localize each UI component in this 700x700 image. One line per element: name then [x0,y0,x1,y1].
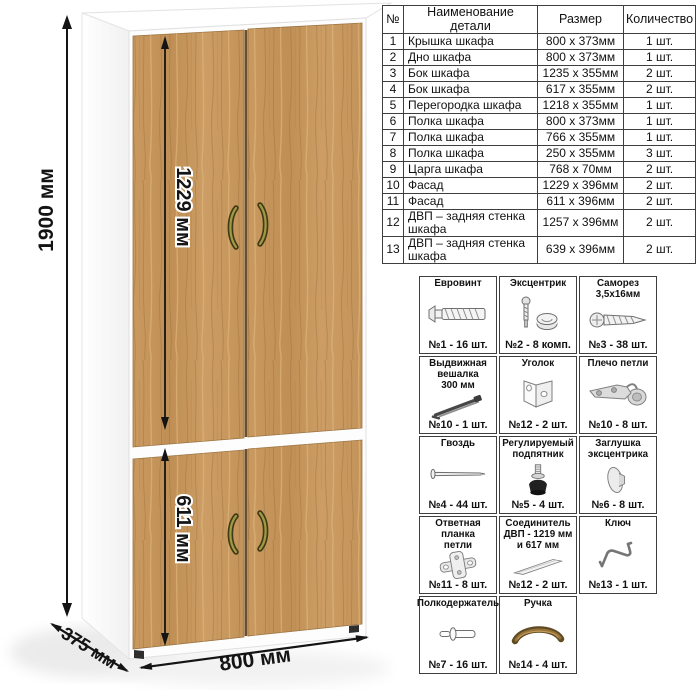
part-name: Перегородка шкафа [404,98,538,114]
table-row: 9Царга шкафа768 х 70мм2 шт. [383,162,696,178]
part-qty: 2 шт. [624,236,696,263]
hardware-title: Саморез 3,5х16мм [596,279,640,301]
part-number: 10 [383,178,404,194]
nail-icon [429,450,487,499]
part-qty: 2 шт. [624,194,696,210]
part-size: 800 х 373мм [538,50,624,66]
table-row: 5Перегородка шкафа1218 х 355мм1 шт. [383,98,696,114]
handle-icon [509,610,567,659]
hardware-item: Гвоздь №4 - 44 шт. [419,436,497,514]
hardware-qty: №4 - 44 шт. [429,499,488,511]
hardware-title: Выдвижная вешалка 300 мм [429,359,487,392]
part-qty: 3 шт. [624,146,696,162]
foot [134,650,144,659]
height-dimension-arrow [62,15,72,617]
part-name: Фасад [404,194,538,210]
part-qty: 2 шт. [624,178,696,194]
table-row: 7Полка шкафа766 х 355мм1 шт. [383,130,696,146]
eccentric-cam-icon [516,290,560,339]
hardware-item: Полкодержатель №7 - 16 шт. [419,596,497,674]
hardware-qty: №5 - 4 шт. [512,499,565,511]
foot [349,625,359,633]
column-header-qty: Количество [624,6,696,34]
part-size: 639 х 396мм [538,236,624,263]
table-row: 4Бок шкафа617 х 355мм2 шт. [383,82,696,98]
part-qty: 1 шт. [624,130,696,146]
parts-table-header-row: № Наименование детали Размер Количество [383,6,696,34]
part-size: 1229 х 396мм [538,178,624,194]
hardware-title: Ручка [524,599,552,610]
part-size: 1218 х 355мм [538,98,624,114]
part-name: Крышка шкафа [404,34,538,50]
corner-bracket-icon [518,370,558,419]
column-header-size: Размер [538,6,624,34]
part-name: Дно шкафа [404,50,538,66]
hardware-qty: №1 - 16 шт. [429,339,488,351]
part-name: Бок шкафа [404,66,538,82]
part-qty: 2 шт. [624,162,696,178]
part-name: Бок шкафа [404,82,538,98]
hardware-qty: №3 - 38 шт. [589,339,648,351]
hardware-qty: №6 - 8 шт. [592,499,645,511]
self-tapping-screw-icon [589,301,647,339]
part-name: Полка шкафа [404,114,538,130]
hardware-title: Регулируемый подпятник [502,439,574,461]
hardware-qty: №12 - 2 шт. [509,419,568,431]
hardware-title: Заглушка эксцентрика [588,439,648,461]
pullout-hanger-icon [425,392,491,419]
hardware-qty: №7 - 16 шт. [429,659,488,671]
hex-key-icon [595,530,641,579]
part-qty: 2 шт. [624,210,696,237]
cam-cap-icon [605,461,631,499]
hardware-qty: №13 - 1 шт. [589,579,648,591]
hardware-title: Соединитель ДВП - 1219 мм и 617 мм [504,519,573,552]
table-row: 11Фасад611 х 396мм2 шт. [383,194,696,210]
part-name: ДВП – задняя стенка шкафа [404,210,538,237]
part-number: 6 [383,114,404,130]
hardware-item: Ответная планка петли №11 - 8 шт. [419,516,497,594]
hardware-title: Ответная планка петли [421,519,495,552]
part-qty: 1 шт. [624,98,696,114]
hardware-grid: Евровинт №1 - 16 шт. Эксцентрик №2 - 8 к… [419,276,657,674]
part-qty: 2 шт. [624,66,696,82]
hardware-title: Ключ [605,519,631,530]
adjustable-foot-icon [523,461,553,499]
part-name: Царга шкафа [404,162,538,178]
part-number: 11 [383,194,404,210]
height-dimension-label: 1900 мм [35,168,58,252]
part-name: ДВП – задняя стенка шкафа [404,236,538,263]
part-name: Полка шкафа [404,130,538,146]
table-row: 1Крышка шкафа800 х 373мм1 шт. [383,34,696,50]
part-name: Фасад [404,178,538,194]
part-number: 5 [383,98,404,114]
part-qty: 1 шт. [624,34,696,50]
hardware-item: Выдвижная вешалка 300 мм №10 - 1 шт. [419,356,497,434]
shelf-pin-icon [437,610,479,659]
part-qty: 2 шт. [624,82,696,98]
upper-door-dimension-label: 1229 мм [172,167,194,247]
hdf-connector-icon [505,552,571,579]
hinge-plate-icon [435,552,481,579]
part-size: 250 х 355мм [538,146,624,162]
hardware-item: Регулируемый подпятник №5 - 4 шт. [499,436,577,514]
part-size: 768 х 70мм [538,162,624,178]
part-size: 800 х 373мм [538,114,624,130]
hardware-item: Евровинт №1 - 16 шт. [419,276,497,354]
part-number: 4 [383,82,404,98]
table-row: 13ДВП – задняя стенка шкафа639 х 396мм2 … [383,236,696,263]
part-size: 1235 х 355мм [538,66,624,82]
part-size: 617 х 355мм [538,82,624,98]
hardware-item: Плечо петли №10 - 8 шт. [579,356,657,434]
hardware-qty: №12 - 2 шт. [509,579,568,591]
hardware-title: Гвоздь [441,439,475,450]
table-row: 3Бок шкафа1235 х 355мм2 шт. [383,66,696,82]
part-size: 800 х 373мм [538,34,624,50]
hardware-qty: №11 - 8 шт. [429,579,487,591]
hardware-grid-empty-slot [579,596,657,674]
table-row: 2Дно шкафа800 х 373мм1 шт. [383,50,696,66]
hardware-item: Соединитель ДВП - 1219 мм и 617 мм №12 -… [499,516,577,594]
part-qty: 1 шт. [624,50,696,66]
hardware-title: Плечо петли [588,359,649,370]
hardware-qty: №2 - 8 комп. [505,339,571,351]
hardware-title: Уголок [522,359,554,370]
part-number: 13 [383,236,404,263]
hardware-item: Заглушка эксцентрика №6 - 8 шт. [579,436,657,514]
table-row: 10Фасад1229 х 396мм2 шт. [383,178,696,194]
part-number: 1 [383,34,404,50]
table-row: 6Полка шкафа800 х 373мм1 шт. [383,114,696,130]
lower-door-dimension-label: 611 мм [172,495,194,562]
hardware-item: Ручка №14 - 4 шт. [499,596,577,674]
hardware-item: Саморез 3,5х16мм №3 - 38 шт. [579,276,657,354]
hardware-qty: №10 - 8 шт. [589,419,648,431]
column-header-number: № [383,6,404,34]
part-number: 9 [383,162,404,178]
hinge-arm-icon [587,370,649,419]
table-row: 12ДВП – задняя стенка шкафа1257 х 396мм2… [383,210,696,237]
part-qty: 1 шт. [624,114,696,130]
wardrobe-side-panel [82,13,129,659]
part-number: 12 [383,210,404,237]
hardware-qty: №14 - 4 шт. [509,659,568,671]
hardware-qty: №10 - 1 шт. [429,419,488,431]
column-header-name: Наименование детали [404,6,538,34]
hardware-title: Полкодержатель [417,599,499,610]
hardware-title: Евровинт [434,279,481,290]
part-size: 1257 х 396мм [538,210,624,237]
hardware-item: Уголок №12 - 2 шт. [499,356,577,434]
parts-table: № Наименование детали Размер Количество … [382,5,696,264]
wardrobe-illustration: 1900 мм 1229 мм 611 мм 800 мм 375 мм [0,0,415,700]
part-number: 3 [383,66,404,82]
assembly-sheet: 1900 мм 1229 мм 611 мм 800 мм 375 мм [0,0,700,700]
table-row: 8Полка шкафа250 х 355мм3 шт. [383,146,696,162]
part-size: 766 х 355мм [538,130,624,146]
hardware-item: Ключ №13 - 1 шт. [579,516,657,594]
part-number: 7 [383,130,404,146]
euro-screw-icon [427,290,489,339]
hardware-title: Эксцентрик [510,279,566,290]
part-name: Полка шкафа [404,146,538,162]
part-number: 2 [383,50,404,66]
hardware-item: Эксцентрик №2 - 8 комп. [499,276,577,354]
part-size: 611 х 396мм [538,194,624,210]
part-number: 8 [383,146,404,162]
